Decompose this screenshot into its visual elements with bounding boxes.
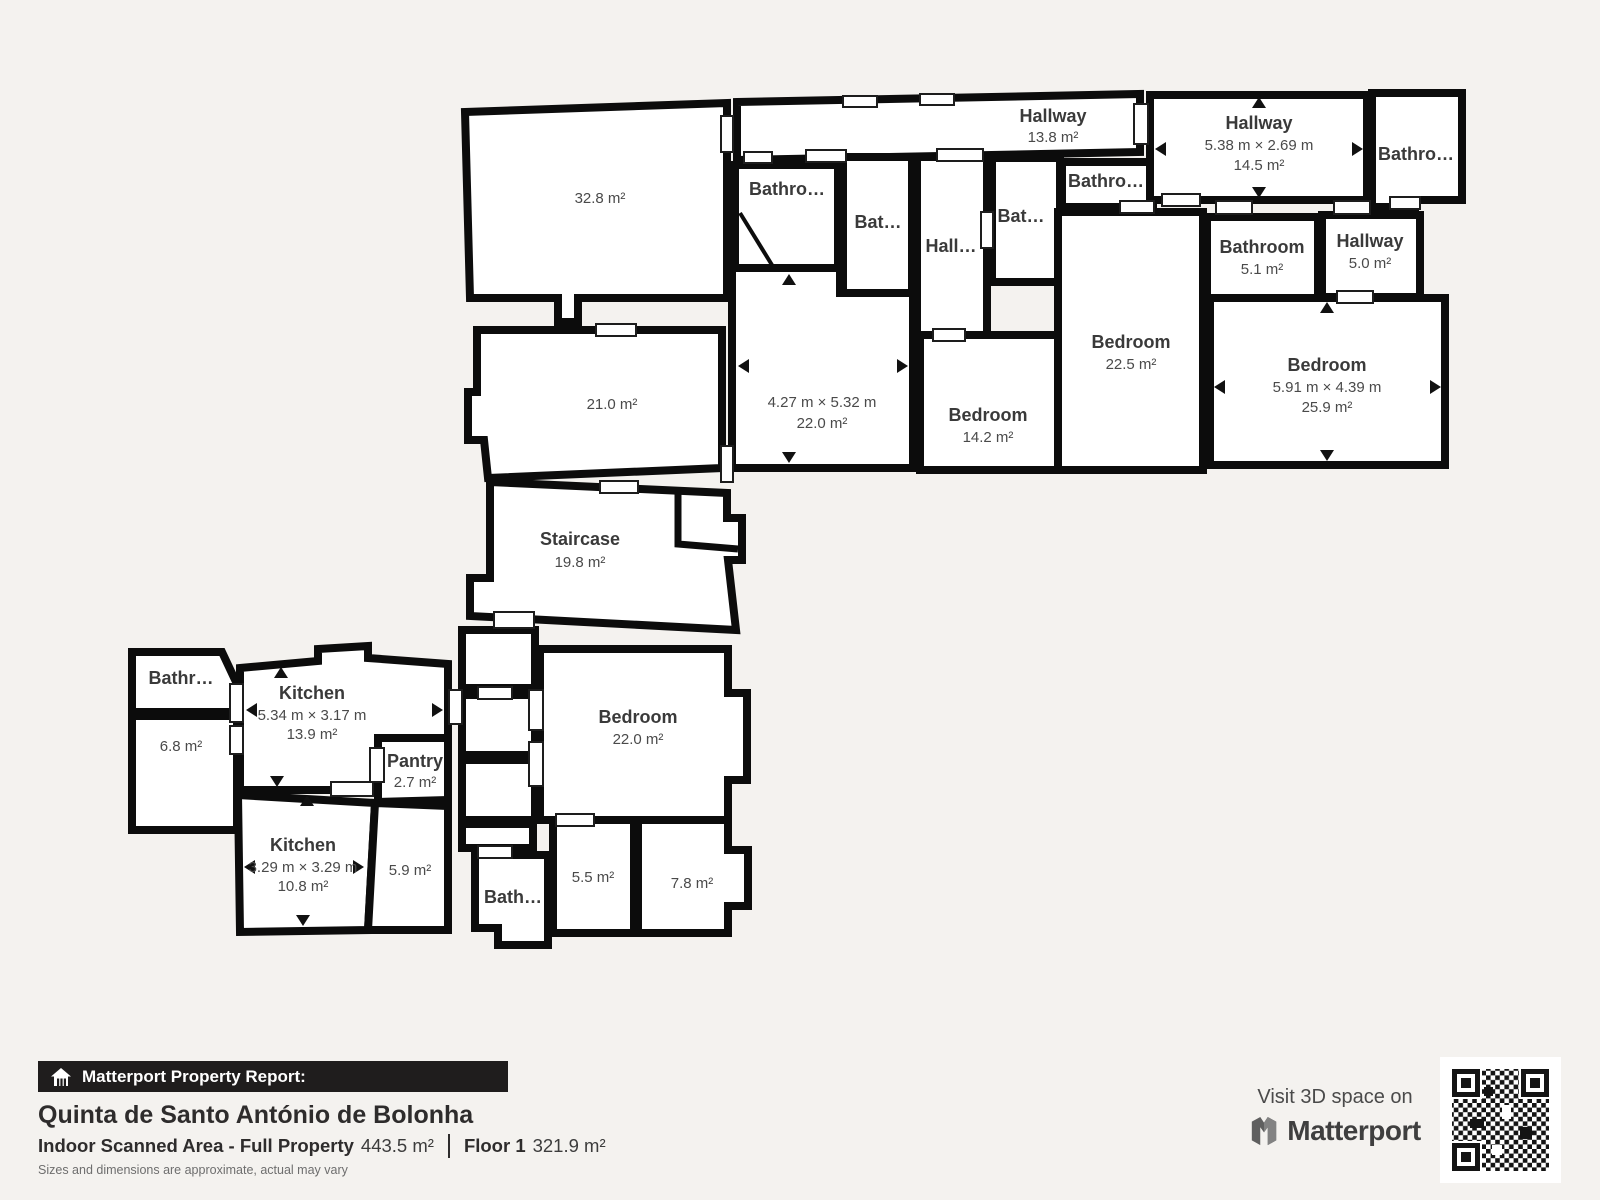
door-opening (806, 150, 846, 162)
room-210-area: 21.0 m² (587, 396, 638, 413)
room-220a-dims: 4.27 m × 5.32 m (768, 394, 877, 411)
stats-divider (448, 1134, 450, 1158)
room-59-area: 5.9 m² (389, 862, 432, 879)
property-name: Quinta de Santo António de Bolonha (38, 1101, 473, 1130)
bedroom-142-area: 14.2 m² (963, 429, 1014, 446)
bathroom-51-area: 5.1 m² (1241, 261, 1284, 278)
bedroom-259-dims: 5.91 m × 4.39 m (1273, 379, 1382, 396)
room-68-area: 6.8 m² (160, 738, 203, 755)
bedroom-142-shape (920, 335, 1058, 470)
bedroom-259-area: 25.9 m² (1302, 399, 1353, 416)
scanned-area-label: Indoor Scanned Area - Full Property (38, 1135, 354, 1157)
house-icon (50, 1066, 72, 1088)
door-opening (529, 690, 543, 730)
promo-3d-space: Visit 3D space on Matterport (1235, 1086, 1435, 1147)
room-220a-area: 22.0 m² (797, 415, 848, 432)
report-banner: Matterport Property Report: (38, 1061, 508, 1092)
kitchen-139-dims: 5.34 m × 3.17 m (258, 707, 367, 724)
door-opening (478, 687, 512, 699)
door-opening (449, 690, 462, 724)
door-opening (596, 324, 636, 336)
room-328-shape (465, 103, 727, 322)
hallway-145-area: 14.5 m² (1234, 157, 1285, 174)
door-opening (331, 782, 373, 796)
bathroom-tr-label: Bathro… (1378, 144, 1454, 164)
matterport-brand-name: Matterport (1287, 1115, 1420, 1147)
hallway-50-label: Hallway (1336, 231, 1403, 251)
disclaimer-text: Sizes and dimensions are approximate, ac… (38, 1163, 348, 1177)
bathroom-left-label: Bathr… (148, 668, 213, 688)
bathroom-51-label: Bathroom (1220, 237, 1305, 257)
bathroom-c-label: Bat… (997, 206, 1044, 226)
kitchen-108-dims: 3.29 m × 3.29 m (249, 859, 358, 876)
door-opening (1390, 197, 1420, 209)
floor-label: Floor 1 (464, 1135, 526, 1157)
door-opening (478, 846, 512, 858)
door-opening (556, 814, 594, 826)
bedroom-142-label: Bedroom (948, 405, 1027, 425)
door-opening (937, 149, 983, 161)
bathroom-bottom-label: Bath… (484, 887, 542, 907)
bathroom-a-label: Bathro… (749, 179, 825, 199)
hallway-top-area: 13.8 m² (1028, 129, 1079, 146)
door-opening (721, 446, 733, 482)
bathroom-b-label: Bat… (854, 212, 901, 232)
hallway-145-label: Hallway (1225, 113, 1292, 133)
matterport-wordmark: Matterport (1235, 1115, 1435, 1147)
bedroom-220b-area: 22.0 m² (613, 731, 664, 748)
hallway-mid-label: Hall… (925, 236, 976, 256)
kitchen-108-area: 10.8 m² (278, 878, 329, 895)
door-opening (494, 612, 534, 628)
area-stats: Indoor Scanned Area - Full Property 443.… (38, 1134, 606, 1158)
corridor-box-3 (462, 760, 535, 820)
corridor-box-1 (462, 630, 535, 688)
hallway-145-dims: 5.38 m × 2.69 m (1205, 137, 1314, 154)
room-55-area: 5.5 m² (572, 869, 615, 886)
corridor-box-2 (462, 695, 535, 755)
bathroom-51-shape (1207, 217, 1318, 298)
report-banner-label: Matterport Property Report: (82, 1067, 306, 1087)
qr-code (1440, 1057, 1561, 1183)
bathroom-d-label: Bathro… (1068, 171, 1144, 191)
floorplan-canvas: 32.8 m² 21.0 m² Staircase 19.8 m² Hallwa… (0, 0, 1600, 1010)
bedroom-225-area: 22.5 m² (1106, 356, 1157, 373)
door-opening (1162, 194, 1200, 206)
pantry-label: Pantry (387, 751, 443, 771)
hallway-50-area: 5.0 m² (1349, 255, 1392, 272)
door-opening (600, 481, 638, 493)
door-opening (230, 726, 243, 754)
matterport-logo-icon (1249, 1115, 1279, 1147)
kitchen-139-area: 13.9 m² (287, 726, 338, 743)
door-opening (529, 742, 543, 786)
door-opening (933, 329, 965, 341)
scanned-area-value: 443.5 m² (361, 1135, 434, 1157)
room-328-area: 32.8 m² (575, 190, 626, 207)
pantry-area: 2.7 m² (394, 774, 437, 791)
door-opening (721, 116, 733, 152)
door-opening (230, 684, 243, 722)
staircase-label: Staircase (540, 529, 620, 549)
kitchen-139-label: Kitchen (279, 683, 345, 703)
bedroom-259-label: Bedroom (1287, 355, 1366, 375)
room-68-shape (132, 716, 237, 830)
door-opening (1120, 201, 1154, 213)
door-opening (744, 152, 772, 163)
door-opening (1134, 104, 1148, 144)
hallway-top-label: Hallway (1019, 106, 1086, 126)
door-opening (370, 748, 384, 782)
room-78-area: 7.8 m² (671, 875, 714, 892)
bedroom-225-label: Bedroom (1091, 332, 1170, 352)
promo-visit-text: Visit 3D space on (1235, 1086, 1435, 1109)
floor-value: 321.9 m² (533, 1135, 606, 1157)
corridor-box-4 (462, 824, 533, 848)
door-opening (1337, 291, 1373, 303)
matterport-floorplan-report: 32.8 m² 21.0 m² Staircase 19.8 m² Hallwa… (0, 0, 1600, 1200)
door-opening (981, 212, 993, 248)
staircase-shape (470, 482, 742, 630)
door-opening (1216, 201, 1252, 214)
door-opening (1334, 201, 1370, 214)
staircase-area: 19.8 m² (555, 554, 606, 571)
room-220a-shape (732, 268, 913, 468)
kitchen-108-label: Kitchen (270, 835, 336, 855)
window-opening (843, 96, 877, 107)
bedroom-220b-label: Bedroom (598, 707, 677, 727)
window-opening (920, 94, 954, 105)
